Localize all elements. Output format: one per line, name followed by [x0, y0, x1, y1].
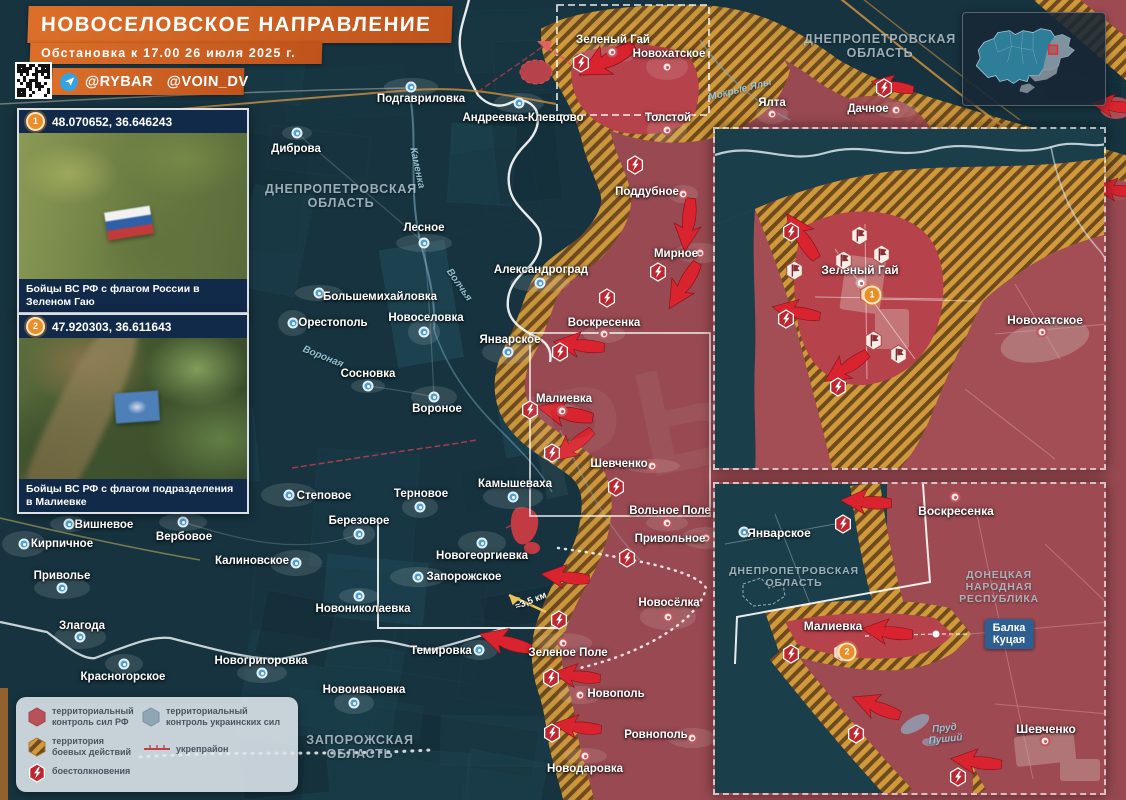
clash-icon	[649, 262, 667, 282]
region-label: ДНЕПРОПЕТРОВСКАЯ ОБЛАСТЬ	[265, 182, 417, 210]
clash-icon	[598, 288, 616, 308]
place-label: Вольное Поле	[629, 505, 711, 517]
place-label: Воскресенка	[918, 504, 994, 518]
place-label: Александроград	[494, 264, 588, 276]
place-label: Терновое	[394, 488, 448, 500]
place-label: Поддубное	[615, 186, 679, 198]
place-pin	[75, 632, 86, 643]
place-pin	[678, 189, 689, 200]
place-pin	[354, 591, 365, 602]
place-label: Степовое	[297, 490, 352, 502]
place-pin	[662, 518, 673, 529]
place-label: Большемихайловка	[323, 291, 437, 303]
place-pin	[415, 502, 426, 513]
place-label: Новополь	[587, 688, 644, 700]
place-pin	[19, 539, 30, 550]
legend-label: территория боевых действий	[52, 736, 131, 757]
place-pin	[474, 645, 485, 656]
place-pin	[413, 572, 424, 583]
region-label: ЗАПОРОЖСКАЯ ОБЛАСТЬ	[306, 733, 414, 761]
photo-2-caption: Бойцы ВС РФ с флагом подразделения в Мал…	[19, 479, 247, 512]
clash-icon	[618, 548, 636, 568]
place-label: Новоселовка	[388, 312, 463, 324]
edge-strip	[0, 688, 8, 800]
place-pin	[767, 109, 778, 120]
inset-1-overlays: Зеленый ГайНовохатское1	[715, 129, 1104, 468]
place-pin	[575, 690, 586, 701]
place-label: Андреевка-Клевцово	[462, 112, 583, 124]
place-label: Березовое	[329, 515, 390, 527]
photo-2-coordinates: 47.920303, 36.611643	[52, 320, 171, 334]
photo-1-badge: 1	[26, 112, 45, 131]
place-pin	[291, 558, 302, 569]
place-pin	[662, 62, 673, 73]
ukraine-minimap	[962, 12, 1106, 106]
clash-icon	[550, 610, 568, 630]
place-pin	[557, 406, 568, 417]
place-label: Вишневое	[75, 519, 134, 531]
clash-icon	[607, 477, 625, 497]
place-label: Зеленый Гай	[821, 263, 898, 277]
place-pin	[119, 659, 130, 670]
place-label: Темировка	[410, 645, 472, 657]
place-label: Новохатское	[1007, 313, 1083, 327]
photo-1-caption: Бойцы ВС РФ с флагом России в Зеленом Га…	[19, 279, 247, 312]
place-label: Ялта	[758, 97, 786, 109]
legend-icon-hex-red	[28, 707, 46, 727]
place-pin	[354, 529, 365, 540]
place-label: Дачное	[847, 103, 888, 115]
situation-map: ДНЕПРОПЕТРОВСКАЯ ОБЛАСТЬДНЕПРОПЕТРОВСКАЯ…	[0, 0, 1126, 800]
numbered-badge: 1	[863, 286, 882, 305]
place-pin	[1040, 736, 1051, 747]
place-label: Мирное	[654, 248, 698, 260]
place-pin	[891, 105, 902, 116]
place-label: Январское	[747, 526, 811, 540]
place-label: Новоивановка	[323, 684, 406, 696]
place-label: Толстой	[645, 112, 691, 124]
region-label: ДНЕПРОПЕТРОВСКАЯ ОБЛАСТЬ	[804, 32, 956, 60]
place-label: Привольное	[635, 533, 706, 545]
place-label: Камышеваха	[478, 478, 552, 490]
photo-2-image	[19, 338, 247, 479]
place-label: Новогригоровка	[214, 655, 307, 667]
legend-panel: территориальный контроль сил РФтерритори…	[16, 697, 298, 792]
legend-icon-hex-hatch	[28, 737, 46, 757]
place-label: Калиновское	[215, 555, 289, 567]
place-pin	[419, 327, 430, 338]
place-label: Новодаровка	[547, 763, 623, 775]
region-label: ДНЕПРОПЕТРОВСКАЯ ОБЛАСТЬ	[729, 565, 859, 589]
place-label: Новониколаевка	[316, 603, 411, 615]
place-pin	[292, 128, 303, 139]
place-label: Новохатское	[633, 48, 706, 60]
inset-2-overlays: ДНЕПРОПЕТРОВСКАЯ ОБЛАСТЬДОНЕЦКАЯ НАРОДНА…	[715, 484, 1104, 793]
legend-label: территориальный контроль сил РФ	[52, 706, 134, 727]
place-label: Воскресенка	[568, 317, 641, 329]
place-label: Запорожское	[427, 571, 502, 583]
place-label: Малиевка	[536, 393, 592, 405]
clash-icon	[875, 78, 893, 98]
page-subtitle: Обстановка к 17.00 26 июля 2025 г.	[30, 43, 323, 64]
clash-icon	[521, 400, 539, 420]
inset-zeleny-gai: Зеленый ГайНовохатское1	[713, 127, 1106, 470]
place-label: Приволье	[34, 570, 91, 582]
place-pin	[663, 612, 674, 623]
numbered-badge: 2	[838, 643, 857, 662]
place-pin	[580, 751, 591, 762]
page-title: НОВОСЕЛОВСКОЕ НАПРАВЛЕНИЕ	[27, 6, 452, 43]
telegram-handles: @RYBAR @VOIN_DV	[85, 74, 249, 90]
region-label: ДОНЕЦКАЯ НАРОДНАЯ РЕСПУБЛИКА	[959, 569, 1039, 605]
place-pin	[950, 492, 961, 503]
place-pin	[535, 278, 546, 289]
place-pin	[607, 47, 618, 58]
place-label: Зеленый Гай	[576, 34, 650, 46]
place-pin	[662, 125, 673, 136]
place-pin	[178, 517, 189, 528]
place-label: Новосёлка	[638, 597, 699, 609]
place-pin	[508, 492, 519, 503]
photo-1-image	[19, 133, 247, 279]
place-label: Подгавриловка	[377, 93, 465, 105]
photo-1-header: 1 48.070652, 36.646243	[19, 110, 247, 133]
place-label: Январское	[480, 334, 541, 346]
place-pin	[284, 490, 295, 501]
place-label: Новогеоргиевка	[436, 550, 528, 562]
place-pin	[288, 318, 299, 329]
place-pin	[1037, 327, 1048, 338]
photo-2-badge: 2	[26, 317, 45, 336]
clash-icon	[542, 668, 560, 688]
unit-flag	[114, 390, 160, 423]
legend-icon-hex-ukr	[142, 707, 160, 727]
place-label: Злагода	[59, 620, 105, 632]
place-pin	[429, 392, 440, 403]
photo-1-coordinates: 48.070652, 36.646243	[52, 115, 172, 129]
place-label: Шевченко	[590, 458, 647, 470]
place-pin	[349, 698, 360, 709]
place-pin	[599, 329, 610, 340]
photo-card-2: 2 47.920303, 36.611643 Бойцы ВС РФ с фла…	[17, 313, 249, 514]
place-pin	[477, 538, 488, 549]
legend-label: укрепрайон	[176, 744, 228, 755]
legend-label: боестолкновения	[52, 766, 130, 777]
telegram-strip: @RYBAR @VOIN_DV	[52, 68, 245, 95]
callout-balka-kutsaya: Балка Куцая	[985, 619, 1034, 649]
place-label: Вороное	[412, 403, 462, 415]
place-pin	[257, 668, 268, 679]
telegram-icon	[60, 73, 79, 91]
place-label: Шевченко	[1016, 722, 1076, 736]
place-label: Орестополь	[298, 317, 367, 329]
photo-2-header: 2 47.920303, 36.611643	[19, 315, 247, 338]
place-label: Лесное	[403, 222, 444, 234]
clash-icon	[543, 443, 561, 463]
place-label: Зеленое Поле	[528, 647, 607, 659]
place-pin	[503, 347, 514, 358]
place-label: Кирпичное	[31, 538, 93, 550]
place-label: Красногорское	[81, 671, 166, 683]
place-pin	[647, 461, 658, 472]
place-pin	[57, 583, 68, 594]
legend-label: территориальный контроль украинских сил	[166, 706, 280, 727]
place-label: Сосновка	[341, 368, 396, 380]
place-label: Ровнополь	[624, 729, 688, 741]
qr-code	[15, 62, 52, 99]
clash-icon	[551, 342, 569, 362]
clash-icon	[626, 155, 644, 175]
place-pin	[363, 381, 374, 392]
photo-card-1: 1 48.070652, 36.646243 Бойцы ВС РФ с фла…	[17, 108, 249, 314]
russian-flag	[104, 205, 154, 240]
clash-icon	[543, 723, 561, 743]
place-label: Вербовое	[156, 531, 212, 543]
clash-icon	[572, 53, 590, 73]
inset-malievka: ДНЕПРОПЕТРОВСКАЯ ОБЛАСТЬДОНЕЦКАЯ НАРОДНА…	[713, 482, 1106, 795]
place-pin	[406, 82, 417, 93]
place-pin	[64, 519, 75, 530]
river-label: Пруд Пуший	[927, 721, 963, 746]
legend-icon-hex-bolt	[28, 763, 46, 783]
legend-icon-line-red	[142, 741, 172, 753]
place-label: Малиевка	[804, 619, 863, 633]
place-pin	[419, 238, 430, 249]
place-pin	[514, 98, 525, 109]
place-label: Диброва	[271, 143, 321, 155]
